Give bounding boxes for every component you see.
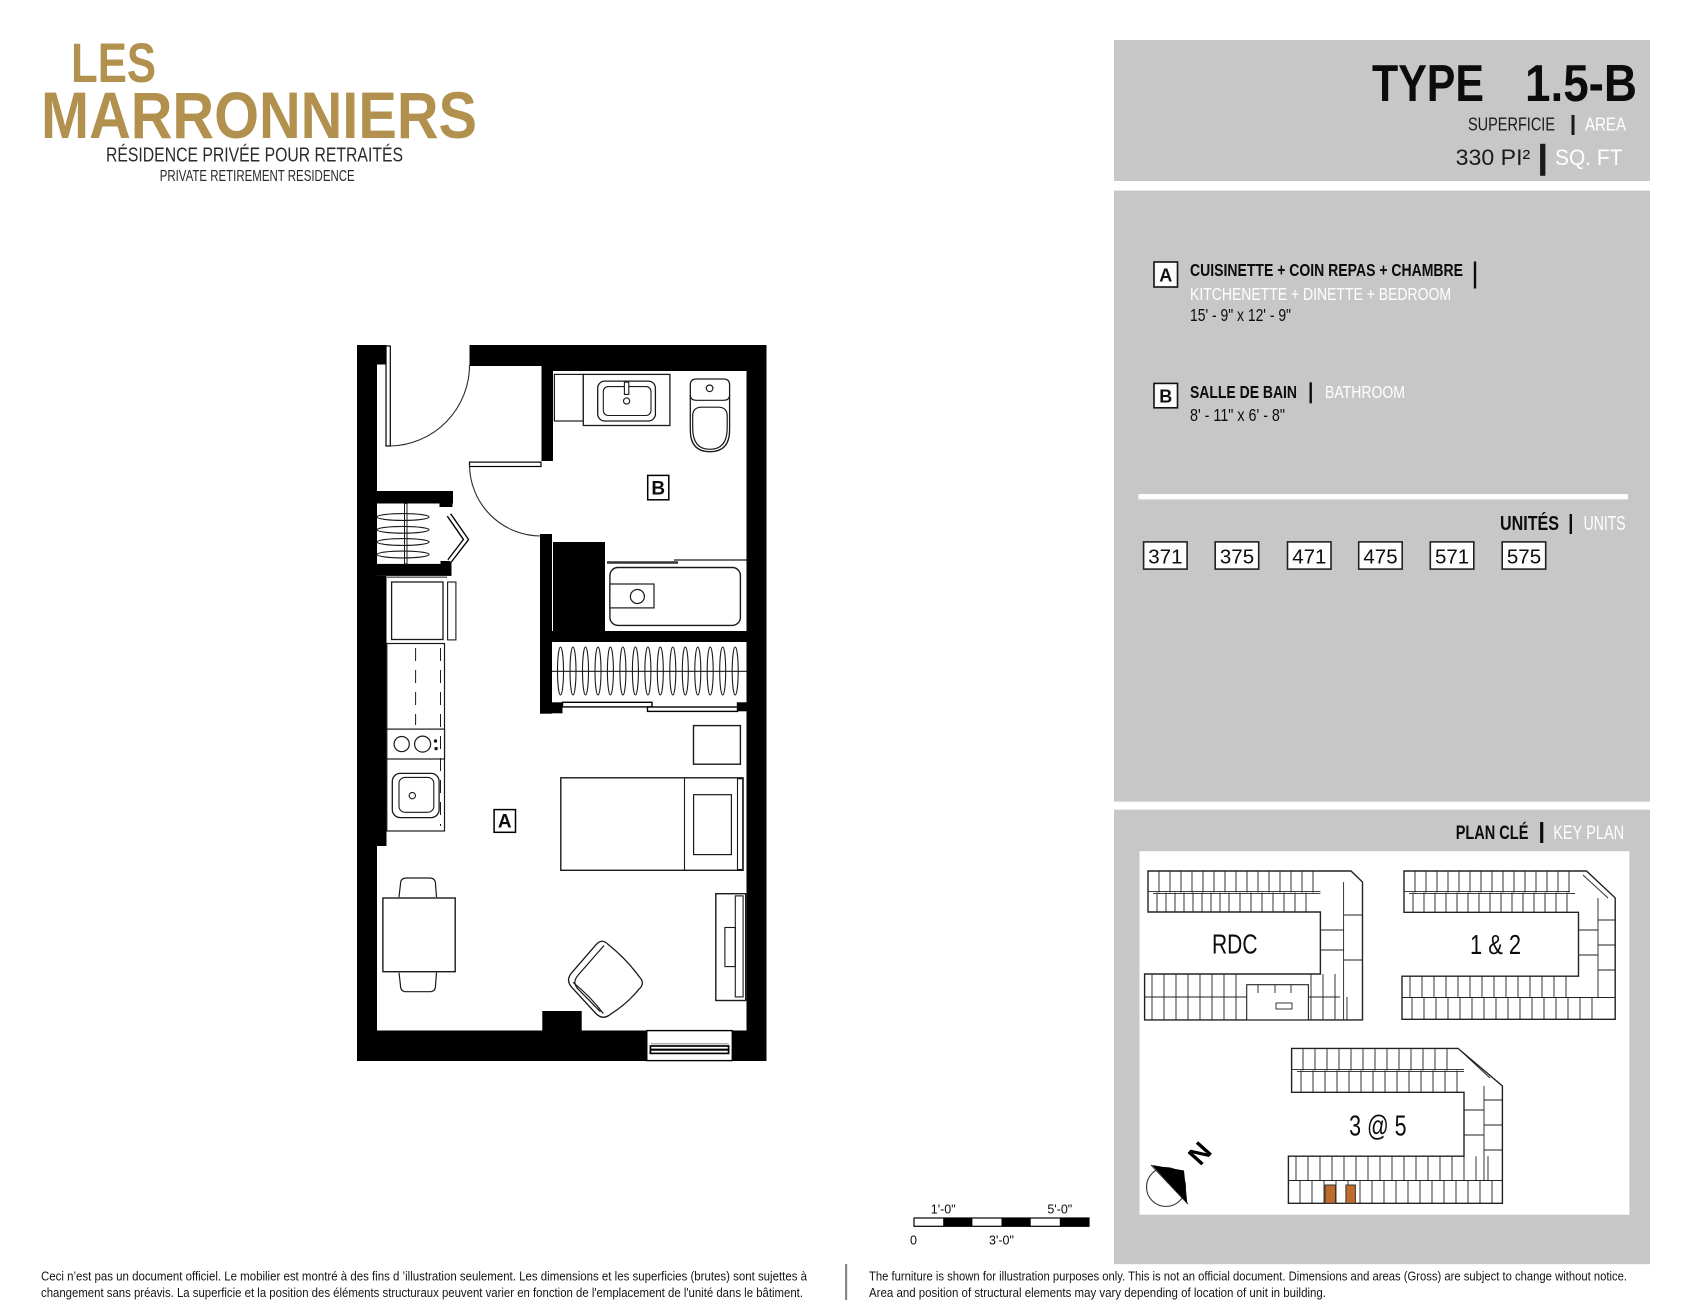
svg-text:A: A xyxy=(1159,266,1172,286)
svg-text:471: 471 xyxy=(1292,546,1326,569)
svg-text:changement sans préavis. La su: changement sans préavis. La superficie e… xyxy=(41,1285,803,1300)
svg-text:The furniture is shown for ill: The furniture is shown for illustration … xyxy=(869,1268,1627,1283)
svg-text:SUPERFICIE: SUPERFICIE xyxy=(1468,114,1555,135)
svg-text:0: 0 xyxy=(910,1234,917,1248)
svg-text:375: 375 xyxy=(1220,546,1254,569)
svg-text:RÉSIDENCE PRIVÉE POUR RETRAITÉ: RÉSIDENCE PRIVÉE POUR RETRAITÉS xyxy=(106,144,403,167)
svg-text:330 PI²: 330 PI² xyxy=(1456,145,1531,170)
svg-text:3 @ 5: 3 @ 5 xyxy=(1349,1110,1407,1142)
svg-text:475: 475 xyxy=(1363,546,1397,569)
svg-text:Area and position of structura: Area and position of structural elements… xyxy=(869,1285,1326,1300)
svg-text:KEY PLAN: KEY PLAN xyxy=(1553,823,1624,844)
svg-text:UNITS: UNITS xyxy=(1584,513,1626,535)
svg-text:3'-0": 3'-0" xyxy=(989,1234,1014,1248)
svg-text:BATHROOM: BATHROOM xyxy=(1325,382,1405,402)
svg-text:PLAN CLÉ: PLAN CLÉ xyxy=(1456,822,1529,844)
svg-text:AREA: AREA xyxy=(1585,114,1627,135)
svg-text:SALLE DE BAIN: SALLE DE BAIN xyxy=(1190,382,1297,402)
svg-text:B: B xyxy=(651,479,665,500)
svg-text:1.5-B: 1.5-B xyxy=(1525,55,1637,113)
svg-text:A: A xyxy=(498,812,512,833)
svg-text:5'-0": 5'-0" xyxy=(1047,1203,1072,1217)
svg-text:UNITÉS: UNITÉS xyxy=(1500,512,1559,535)
svg-text:B: B xyxy=(1159,387,1172,407)
svg-text:MARRONNIERS: MARRONNIERS xyxy=(41,78,477,152)
svg-text:575: 575 xyxy=(1507,546,1541,569)
svg-text:Ceci n’est pas un document off: Ceci n’est pas un document officiel. Le … xyxy=(41,1268,808,1283)
svg-text:571: 571 xyxy=(1435,546,1469,569)
svg-text:CUISINETTE + COIN REPAS + CHAM: CUISINETTE + COIN REPAS + CHAMBRE xyxy=(1190,260,1463,280)
svg-text:RDC: RDC xyxy=(1212,928,1258,959)
svg-text:1'-0": 1'-0" xyxy=(931,1203,956,1217)
svg-text:KITCHENETTE + DINETTE + BEDROO: KITCHENETTE + DINETTE + BEDROOM xyxy=(1190,284,1451,304)
svg-text:1 & 2: 1 & 2 xyxy=(1470,929,1521,960)
svg-text:SQ. FT: SQ. FT xyxy=(1555,145,1623,170)
svg-text:8' - 11" x 6' - 8": 8' - 11" x 6' - 8" xyxy=(1190,405,1285,425)
svg-text:TYPE: TYPE xyxy=(1372,55,1484,113)
svg-text:PRIVATE RETIREMENT RESIDENCE: PRIVATE RETIREMENT RESIDENCE xyxy=(160,168,355,185)
svg-text:371: 371 xyxy=(1148,546,1182,569)
svg-text:15' - 9" x 12' - 9": 15' - 9" x 12' - 9" xyxy=(1190,305,1291,325)
